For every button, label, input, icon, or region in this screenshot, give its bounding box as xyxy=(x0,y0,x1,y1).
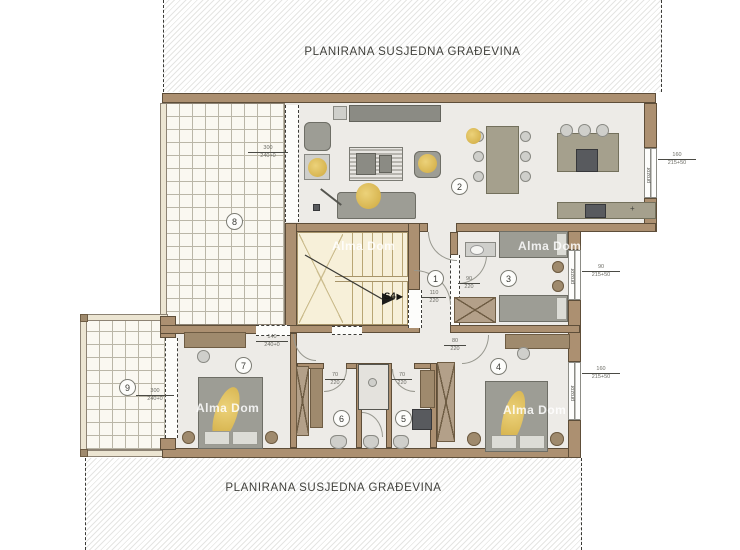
dim-room4-window: 160 215+50 xyxy=(584,366,618,381)
room7-nightstand xyxy=(265,431,278,444)
terrace-8-tiles xyxy=(166,103,285,325)
room-label-bedroom3: 3 xyxy=(500,270,517,287)
room-label-bedroom7: 7 xyxy=(235,357,252,374)
shower-cabin xyxy=(358,364,389,410)
terrace-8-left-wall xyxy=(160,103,167,325)
bath6-toilet xyxy=(330,435,347,449)
kitchen-counter xyxy=(557,202,656,219)
watermark: Alma Dom xyxy=(196,401,259,415)
room3-bed-bottom-pillow xyxy=(556,297,567,320)
room3-nightstand xyxy=(552,261,564,273)
dining-chair xyxy=(473,171,484,182)
terrace-9-left-wall xyxy=(80,314,87,456)
watermark: Alma Dom xyxy=(503,403,566,417)
bar-stool xyxy=(560,124,573,137)
stair-left-wall xyxy=(285,223,297,333)
rooms34-divider-wall xyxy=(450,325,580,333)
tv-unit xyxy=(349,105,441,122)
s4-text: S4 xyxy=(384,291,396,302)
dim-terrace8-door: 300 240+0 xyxy=(250,145,286,160)
hall-wardrobe-left xyxy=(296,366,309,436)
room3-wardrobe xyxy=(454,297,496,323)
living-south-wall-left xyxy=(285,223,428,232)
bath5-washing-machine xyxy=(412,409,432,430)
kitchen-sink xyxy=(585,204,606,218)
room7-chair xyxy=(197,350,210,363)
right-wall-kitchen-upper xyxy=(644,103,657,148)
bar-stool xyxy=(578,124,591,137)
dim-room7-window: 140 240+0 xyxy=(258,334,286,349)
room4-pillow xyxy=(491,435,517,449)
room-label-terrace8: 8 xyxy=(226,213,243,230)
bath5-toilet xyxy=(393,435,409,449)
dining-chair xyxy=(520,151,531,162)
shower-drain xyxy=(368,378,377,387)
dim-kitchen-window: 160 215+50 xyxy=(660,152,694,167)
room4-desk xyxy=(505,334,570,349)
room3-desk-lamp xyxy=(470,245,484,255)
dining-table xyxy=(486,126,519,194)
terrace-9-top-wall xyxy=(80,314,168,321)
dim-terrace9-door: 300 240+0 xyxy=(138,388,172,403)
bottom-band-label: PLANIRANA SUSJEDNA GRAĐEVINA xyxy=(225,482,441,550)
room4-wardrobe xyxy=(437,362,455,442)
room-label-terrace9: 9 xyxy=(119,379,136,396)
watermark: Alma Dom xyxy=(518,239,581,253)
room-label-bath6: 6 xyxy=(333,410,350,427)
floor-lamp-base xyxy=(313,204,320,211)
right-wall-room4-lower xyxy=(568,420,581,458)
terrace8-sliding-door xyxy=(285,105,299,222)
plant-dining-icon xyxy=(466,128,481,144)
floor-plan: PLANIRANA SUSJEDNA GRAĐEVINA PLANIRANA S… xyxy=(0,0,740,550)
dim-room3-window: 90 215+50 xyxy=(584,264,618,279)
room7-pillow xyxy=(232,431,258,445)
room-label-living: 2 xyxy=(451,178,468,195)
tv-speaker xyxy=(333,106,347,120)
room3-window-label: prozor xyxy=(570,258,576,294)
plant-right-icon xyxy=(418,154,437,173)
dining-chair xyxy=(520,171,531,182)
room-label-bath5: 5 xyxy=(395,410,412,427)
dim-bath5-door: 70 220 xyxy=(394,372,410,387)
plant-center-icon xyxy=(356,183,381,209)
dining-chair xyxy=(473,151,484,162)
room4-window-label: prozor xyxy=(570,372,576,414)
coffee-table-a xyxy=(356,153,376,175)
bar-stool xyxy=(596,124,609,137)
room-label-bedroom4: 4 xyxy=(490,358,507,375)
terrace-9-bottom-wall xyxy=(80,450,164,457)
room4-nightstand xyxy=(467,432,481,446)
top-neighbour-band: PLANIRANA SUSJEDNA GRAĐEVINA xyxy=(163,0,662,92)
room7-nightstand xyxy=(182,431,195,444)
bottom-neighbour-band: PLANIRANA SUSJEDNA GRAĐEVINA xyxy=(85,458,582,550)
terrace-9-corner-block-top xyxy=(80,314,88,322)
shower-room-toilet xyxy=(363,435,379,449)
corridor-threshold xyxy=(332,326,362,335)
left-wall-block-lower xyxy=(160,438,176,450)
top-exterior-wall xyxy=(162,93,656,103)
cooktop xyxy=(576,149,598,172)
coffee-table-b xyxy=(379,155,392,173)
room7-pillow xyxy=(204,431,230,445)
dim-room3-door: 90 220 xyxy=(460,276,478,291)
room4-nightstand xyxy=(550,432,564,446)
bath5-vanity xyxy=(420,370,435,408)
dining-chair xyxy=(520,131,531,142)
room4-pillow xyxy=(519,435,545,449)
room-label-hall: 1 xyxy=(427,270,444,287)
armchair-left xyxy=(304,122,331,151)
dim-entry-door: 110 220 xyxy=(424,290,444,305)
room4-chair xyxy=(517,347,530,360)
room3-nightstand xyxy=(552,280,564,292)
stair-s4-label: S4▶ xyxy=(384,291,403,302)
watermark: Alma Dom xyxy=(332,239,395,253)
dim-bath6-door: 70 220 xyxy=(327,372,343,387)
top-band-label: PLANIRANA SUSJEDNA GRAĐEVINA xyxy=(304,46,520,92)
counter-plus-mark: + xyxy=(630,204,635,213)
dim-room4-door: 80 220 xyxy=(446,338,464,353)
terrace-9-corner-block-bottom xyxy=(80,449,88,457)
s4-arrow-icon: ▶ xyxy=(397,292,403,301)
kitchen-window-label: prozor xyxy=(646,155,652,195)
plant-left-icon xyxy=(308,158,327,177)
bath6-vanity xyxy=(310,368,323,428)
room7-desk xyxy=(184,332,246,348)
